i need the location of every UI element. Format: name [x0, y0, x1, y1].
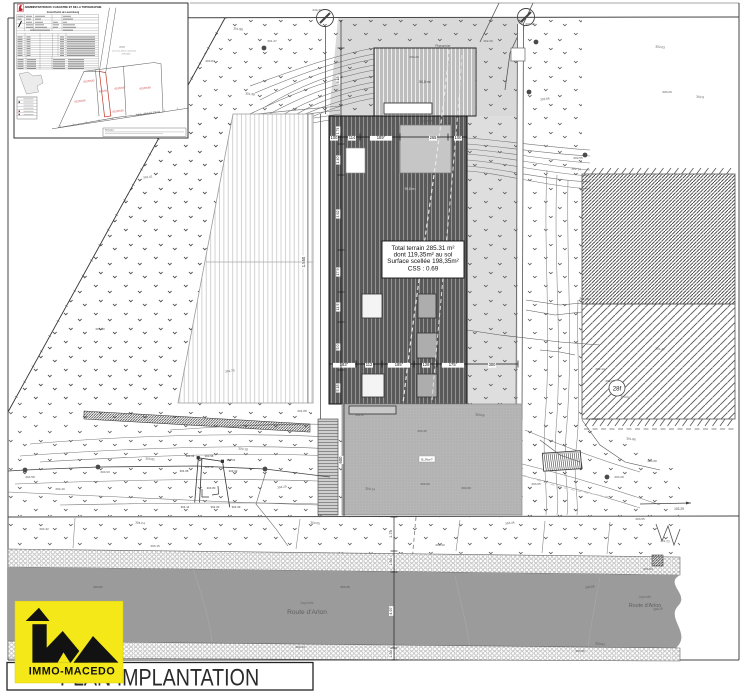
svg-text:112: 112 [366, 362, 373, 367]
svg-text:175°: 175° [449, 362, 458, 367]
svg-text:Surface scellée 198,35m²: Surface scellée 198,35m² [387, 258, 458, 265]
svg-text:300: 300 [489, 362, 497, 367]
svg-text:50,8 m²: 50,8 m² [419, 80, 431, 84]
svg-text:Grand-Duché de Luxembourg: Grand-Duché de Luxembourg [47, 12, 80, 14]
svg-text:303.29: 303.29 [409, 55, 419, 59]
svg-text:303.48: 303.48 [525, 22, 535, 26]
svg-text:90,8 m²: 90,8 m² [405, 187, 416, 191]
svg-text:28f: 28f [613, 386, 622, 393]
svg-text:304.40: 304.40 [55, 487, 65, 491]
svg-text:302.55: 302.55 [591, 417, 601, 421]
svg-text:303.29: 303.29 [662, 90, 672, 94]
svg-text:303.60: 303.60 [435, 543, 445, 547]
svg-text:302.55: 302.55 [573, 156, 583, 160]
svg-text:343,41: 343,41 [312, 8, 322, 12]
svg-text:304.93: 304.93 [100, 470, 110, 474]
svg-text:303.80: 303.80 [207, 486, 216, 490]
svg-text:11.9: 11.9 [336, 304, 340, 311]
svg-text:304.02: 304.02 [229, 469, 238, 473]
svg-text:128: 128 [423, 362, 431, 367]
svg-text:304.01: 304.01 [227, 458, 236, 462]
svg-text:Route d'Arlon: Route d'Arlon [287, 609, 327, 616]
svg-text:265: 265 [430, 135, 438, 140]
svg-text:185°: 185° [395, 362, 404, 367]
svg-text:303.94: 303.94 [643, 567, 653, 571]
svg-text:453/5: 453/5 [119, 47, 125, 49]
svg-text:304.10: 304.10 [295, 645, 305, 649]
svg-text:1.550: 1.550 [301, 256, 306, 267]
svg-text:303.05: 303.05 [531, 482, 541, 486]
svg-text:303.65: 303.65 [635, 517, 645, 521]
svg-text:Asphalte: Asphalte [639, 595, 652, 599]
svg-text:ADMINISTRATION DU CADASTRE ET: ADMINISTRATION DU CADASTRE ET DE LA TOPO… [25, 5, 102, 9]
svg-text:600: 600 [338, 456, 343, 464]
svg-text:1.40: 1.40 [336, 157, 340, 164]
svg-text:CSS : 0.69: CSS : 0.69 [408, 266, 439, 273]
svg-text:5.18: 5.18 [336, 385, 340, 392]
svg-text:301.88: 301.88 [297, 409, 307, 413]
svg-text:114: 114 [349, 135, 356, 140]
svg-text:304.14: 304.14 [181, 505, 190, 509]
svg-text:4.62: 4.62 [336, 211, 340, 218]
svg-text:5.18: 5.18 [336, 77, 340, 84]
svg-text:100: 100 [455, 135, 463, 140]
svg-text:304.09: 304.09 [232, 505, 241, 509]
svg-text:303.08: 303.08 [647, 459, 657, 463]
svg-text:304.00: 304.00 [211, 505, 220, 509]
svg-text:303.45: 303.45 [423, 119, 433, 123]
svg-text:302.08: 302.08 [605, 379, 615, 383]
svg-text:1.50: 1.50 [389, 650, 393, 657]
svg-text:303.91: 303.91 [93, 585, 103, 589]
svg-text:301.47: 301.47 [267, 39, 277, 43]
svg-text:4.97: 4.97 [389, 607, 393, 614]
svg-text:303.15: 303.15 [150, 544, 160, 548]
svg-text:Remarque:: Remarque: [105, 128, 115, 131]
svg-text:17.9: 17.9 [336, 269, 340, 276]
svg-text:302.29: 302.29 [483, 39, 493, 43]
svg-text:303.28: 303.28 [614, 475, 624, 479]
svg-text:301.87: 301.87 [355, 413, 365, 417]
svg-text:304.04: 304.04 [186, 454, 195, 458]
svg-text:301.40: 301.40 [95, 327, 105, 331]
svg-text:303.96: 303.96 [205, 454, 214, 458]
svg-text:304.58: 304.58 [25, 475, 35, 479]
svg-text:303.46: 303.46 [575, 649, 585, 653]
svg-text:IMMO-MACEDO: IMMO-MACEDO [29, 665, 115, 677]
svg-text:304.32: 304.32 [39, 527, 49, 531]
svg-text:189°: 189° [377, 135, 386, 140]
svg-text:304.00: 304.00 [420, 482, 430, 486]
svg-text:1.50: 1.50 [389, 558, 393, 565]
svg-text:303.45: 303.45 [417, 429, 427, 433]
svg-text:304.08: 304.08 [180, 469, 189, 473]
svg-text:Asphalte: Asphalte [300, 601, 313, 605]
svg-text:5.0: 5.0 [336, 345, 340, 350]
svg-text:1.74: 1.74 [336, 128, 340, 135]
svg-text:ancienne limite cadastrale: ancienne limite cadastrale [112, 50, 137, 53]
svg-text:Pigeonnier: Pigeonnier [435, 44, 451, 48]
svg-text:1.75: 1.75 [389, 530, 393, 537]
svg-text:302.8: 302.8 [696, 95, 704, 100]
svg-text:100: 100 [331, 135, 339, 140]
svg-text:304.69: 304.69 [461, 486, 471, 490]
svg-text:303.45: 303.45 [340, 585, 350, 589]
svg-text:303.87: 303.87 [205, 59, 215, 63]
svg-text:B_Rue?: B_Rue? [421, 458, 432, 462]
svg-text:453/5550: 453/5550 [122, 54, 132, 56]
svg-text:103.29: 103.29 [674, 507, 684, 511]
svg-text:302.44: 302.44 [595, 367, 605, 371]
